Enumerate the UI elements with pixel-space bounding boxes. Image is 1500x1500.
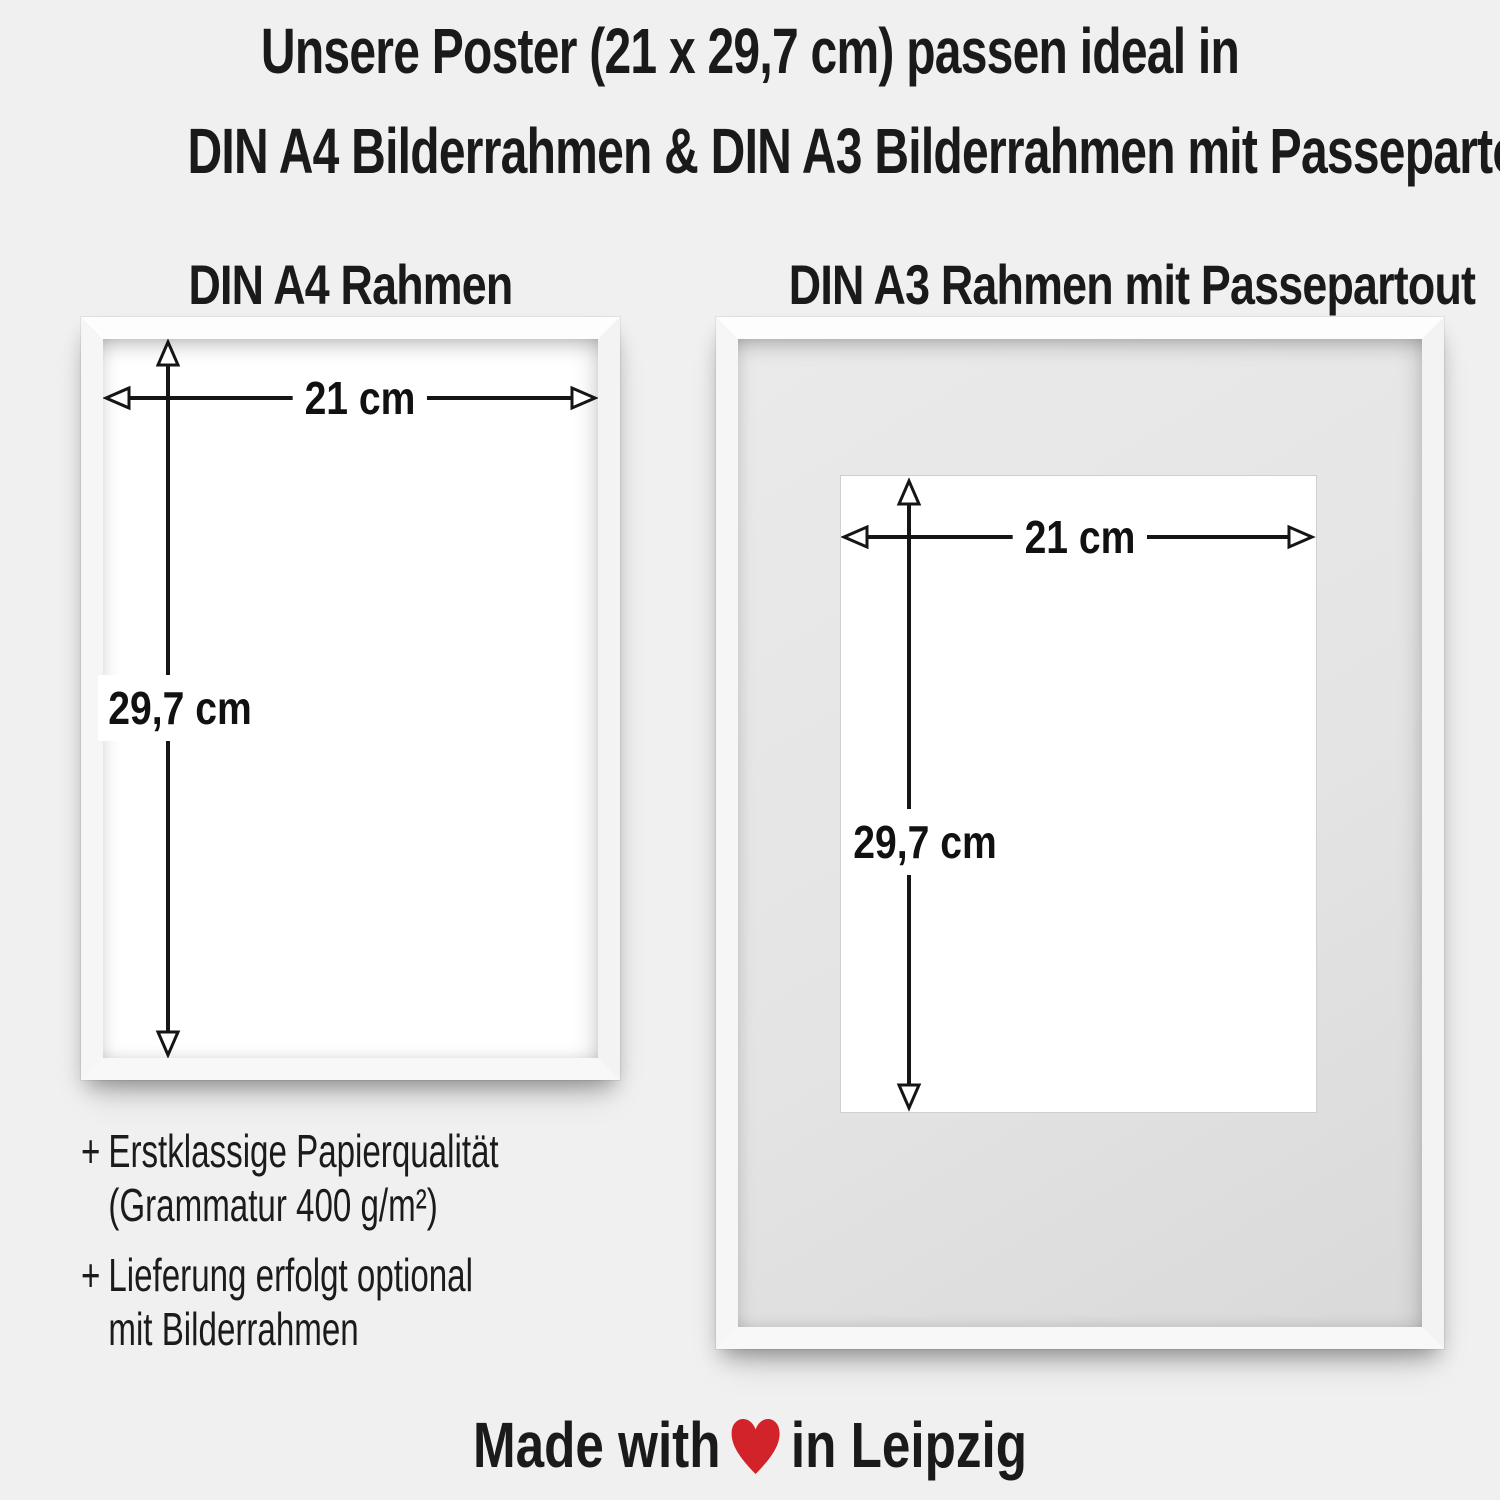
arrowhead-right-icon [572, 388, 595, 408]
arrowhead-left-icon [844, 527, 867, 547]
features-list: +Erstklassige Papierqualität (Grammatur … [81, 1124, 499, 1356]
a3-height-arrow [899, 481, 919, 1108]
a3-dimension-arrows [841, 476, 1316, 1112]
feature-paper-quality: +Erstklassige Papierqualität (Grammatur … [81, 1124, 499, 1232]
plus-bullet: + [81, 1124, 98, 1178]
footer-suffix: in Leipzig [791, 1409, 1027, 1481]
arrowhead-down-icon [158, 1032, 178, 1055]
arrowhead-down-icon [899, 1085, 919, 1108]
a3-picture-frame: 21 cm 29,7 cm [716, 317, 1444, 1349]
footer-tagline: Made within Leipzig [150, 1408, 1350, 1482]
plus-bullet: + [81, 1248, 98, 1302]
title-line-1: Unsere Poster (21 x 29,7 cm) passen idea… [188, 14, 1313, 88]
a4-picture-frame: 21 cm 29,7 cm [81, 317, 620, 1080]
feature-line: (Grammatur 400 g/m²) [108, 1178, 498, 1232]
a4-width-label: 21 cm [293, 371, 428, 425]
heart-icon [729, 1417, 783, 1477]
arrowhead-left-icon [106, 388, 129, 408]
arrowhead-right-icon [1289, 527, 1312, 547]
feature-text: Lieferung erfolgt optional [108, 1249, 473, 1301]
feature-line: mit Bilderrahmen [108, 1302, 498, 1356]
a3-passepartout: 21 cm 29,7 cm [738, 339, 1422, 1327]
a3-width-label: 21 cm [1013, 510, 1148, 564]
a4-height-label: 29,7 cm [98, 675, 262, 741]
feature-text: Erstklassige Papierqualität [108, 1125, 498, 1177]
a3-section-heading: DIN A3 Rahmen mit Passepartout [789, 252, 1371, 317]
arrowhead-up-icon [899, 481, 919, 504]
a4-frame-opening: 21 cm 29,7 cm [103, 339, 598, 1058]
arrowhead-up-icon [158, 342, 178, 365]
footer-prefix: Made with [473, 1409, 720, 1481]
feature-delivery: +Lieferung erfolgt optional mit Bilderra… [81, 1248, 499, 1356]
a3-poster-area: 21 cm 29,7 cm [840, 475, 1317, 1113]
feature-line: +Lieferung erfolgt optional [81, 1248, 499, 1302]
feature-line: +Erstklassige Papierqualität [81, 1124, 499, 1178]
infographic-canvas: Unsere Poster (21 x 29,7 cm) passen idea… [0, 0, 1500, 1500]
title-line-2: DIN A4 Bilderrahmen & DIN A3 Bilderrahme… [188, 114, 1313, 188]
a3-height-label: 29,7 cm [843, 809, 1007, 875]
a4-section-heading: DIN A4 Rahmen [135, 252, 566, 317]
